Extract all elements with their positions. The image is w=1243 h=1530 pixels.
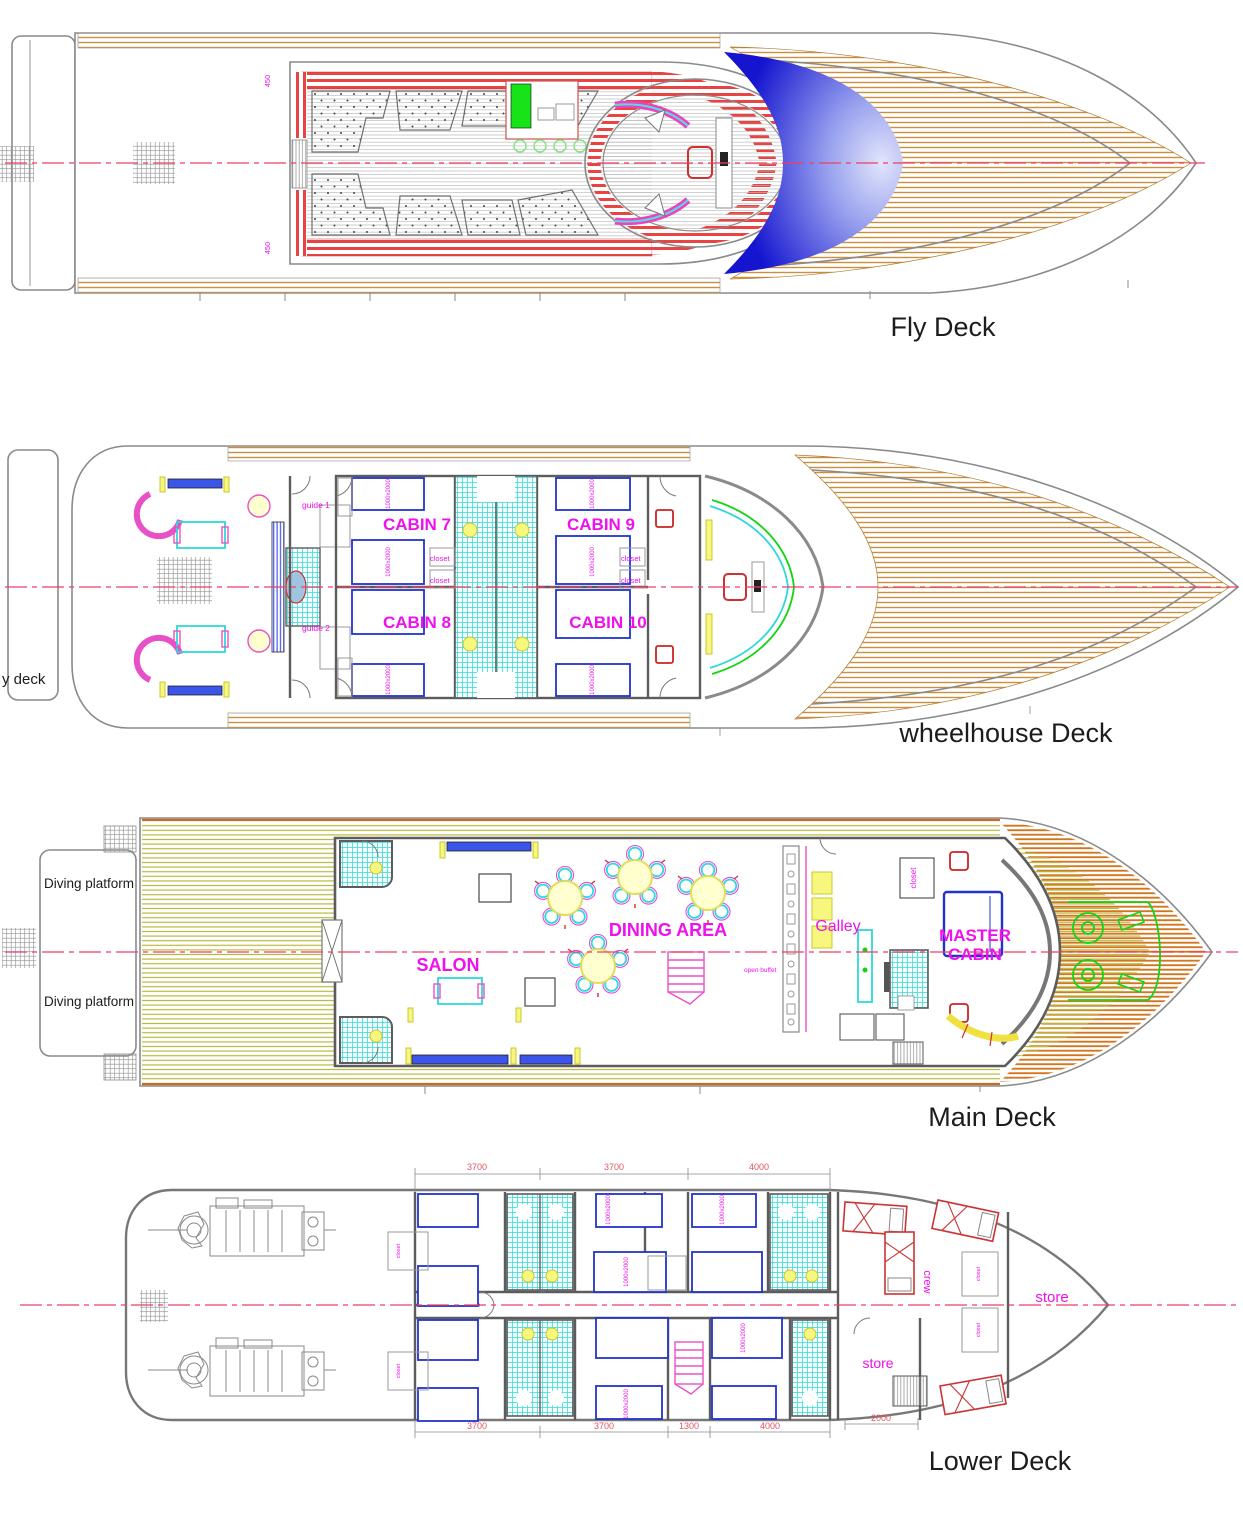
wh-mast-hatch [157,557,212,604]
salon-bathroom-top [340,841,392,887]
bed-size-label: 1000x2000 [590,546,596,576]
cabin9-label: CABIN 9 [567,515,635,534]
dim-top-2: 3700 [604,1162,624,1172]
fly-red-band-top [302,72,652,89]
wheelhouse-deck-title: wheelhouse Deck [898,718,1113,748]
dim-top-1: 3700 [467,1162,487,1172]
dim-bottom-4: 4000 [760,1421,780,1431]
master-cabin-label-2: CABIN [948,945,1002,964]
main-side-deck-top [335,822,1000,838]
square-table [479,874,511,902]
closet-label: closet [976,1266,982,1281]
bench-seat [412,1055,508,1064]
store-bow-label: store [1035,1289,1068,1306]
bed-size-label: 1000x2000 [624,1256,630,1286]
cabin8-label: CABIN 8 [383,613,451,632]
bed-size-label: 1000x2000 [590,664,596,694]
diving-platform-label-bottom: Diving platform [44,994,134,1009]
crew-bunk [885,1232,914,1294]
dim-top-3: 4000 [749,1162,769,1172]
lower-mast-hatch [140,1290,168,1322]
closet-label: closet [976,1322,982,1337]
main-deck-plan: Galley closet open buffet MASTER CABIN D… [2,818,1238,1132]
store-stairs [893,1376,927,1406]
bed-size-label: 1000x2000 [386,478,392,508]
salon-label: SALON [417,955,480,975]
open-buffet-label: open buffet [744,967,777,974]
yacht-deck-plans-document: 450 450 Fly Deck [0,0,1243,1530]
crew-label: crew [921,1270,933,1293]
closet-label: closet [621,576,642,585]
deck-plans-drawing: 450 450 Fly Deck [0,0,1243,1530]
fly-deck-plan: 450 450 Fly Deck [0,33,1205,342]
guide2-label: guide 2 [302,623,330,633]
galley-label: Galley [815,918,860,935]
fly-ladder-top [292,72,307,138]
fly-deck-title: Fly Deck [890,312,996,342]
wh-side-deck-top [228,446,690,461]
dining-area-label: DINING AREA [609,920,727,940]
round-table [248,630,270,652]
galley-stairs [893,1042,923,1064]
bed-size-label: 1000x2000 [624,1388,630,1418]
fly-dim-450-top: 450 [263,75,272,88]
fly-side-deck-top [78,33,720,48]
store-aft-label: store [862,1355,893,1371]
closet-label: closet [909,867,918,889]
fly-side-deck-bottom [78,278,720,293]
bed-size-label: 1000x2000 [386,664,392,694]
fly-dim-450-bottom: 450 [263,242,272,255]
bed-size-label: 1000x2000 [386,546,392,576]
main-deck-title: Main Deck [928,1102,1056,1132]
diving-platform-label-top: Diving platform [44,876,134,891]
wh-swim-platform [8,450,58,700]
guide1-label: guide 1 [302,500,330,510]
bed-size-label: 1000x2000 [606,1194,612,1224]
closet-label: closet [396,1363,402,1378]
fly-ladder-bottom [292,190,307,256]
cabin7-label: CABIN 7 [383,515,451,534]
bench-seat [168,479,222,488]
wh-edge-label: y deck [2,671,46,688]
dim-bottom-3: 1300 [679,1421,699,1431]
closet-label: closet [396,1243,402,1258]
bench-seat [168,686,222,695]
wh-side-deck-bottom [228,713,690,728]
dim-bottom-1: 3700 [467,1421,487,1431]
bed-size-label: 1000x2000 [720,1194,726,1224]
master-cabin-label-1: MASTER [939,926,1011,945]
main-side-deck-bottom [335,1066,1000,1082]
round-table [248,495,270,517]
dim-bow-2000: 2000 [871,1413,891,1423]
bench-seat [520,1055,572,1064]
wheelhouse-deck-plan: guide 1 guide 2 [2,446,1238,748]
bed-size-label: 1000x2000 [741,1322,747,1352]
dim-bottom-2: 3700 [594,1421,614,1431]
lower-deck-title: Lower Deck [929,1446,1072,1476]
fly-red-band-bottom [302,239,652,256]
closet-label: closet [621,554,642,563]
lower-deck-plan: 1000x2000 1000x2000 1000x2000 1000x2000 … [20,1162,1240,1476]
cabin10-label: CABIN 10 [569,613,646,632]
closet-label: closet [430,576,451,585]
buffet-counter [783,846,799,1032]
bed-size-label: 1000x2000 [590,478,596,508]
fly-stern-hatch [0,146,34,182]
salon-bathroom-bottom [340,1017,392,1063]
bench-seat [447,842,531,851]
closet-label: closet [430,554,451,563]
square-table [525,978,555,1006]
crew-bunk [843,1202,907,1235]
